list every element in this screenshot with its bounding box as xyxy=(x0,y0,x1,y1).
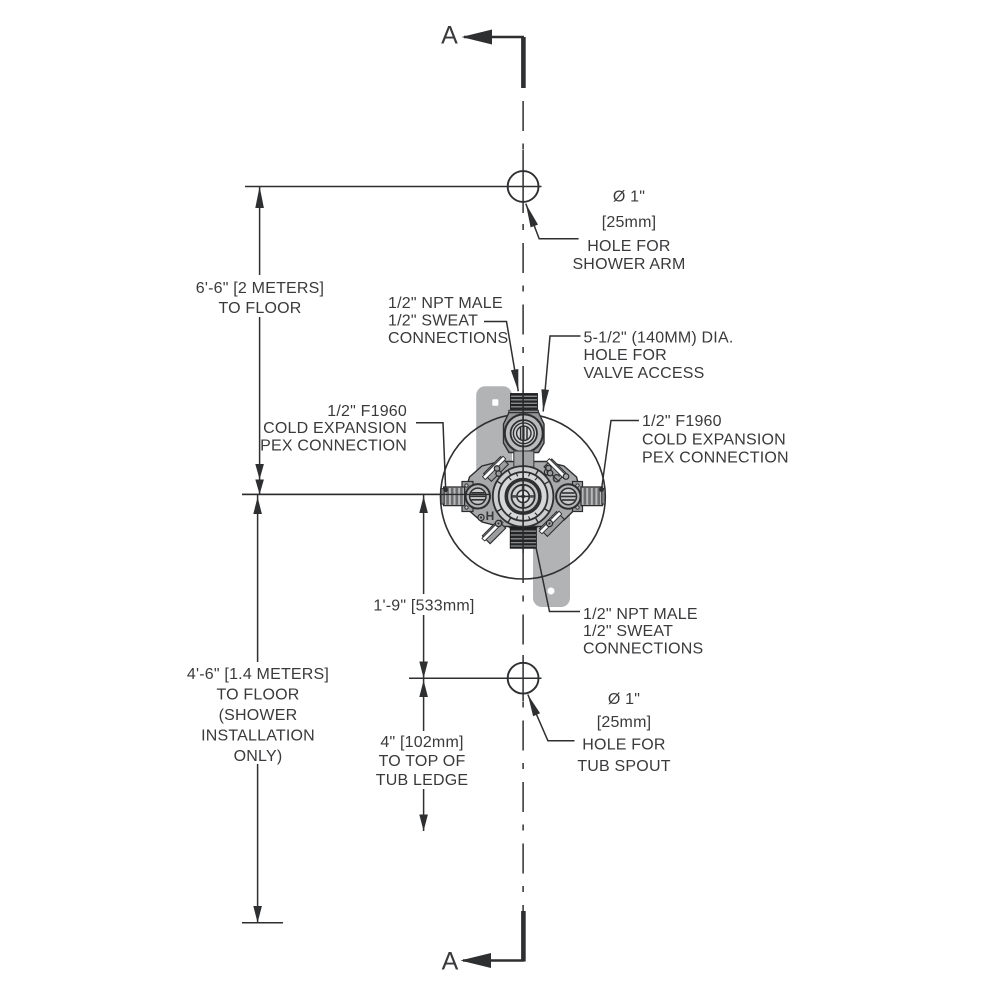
svg-text:HOLE FOR: HOLE FOR xyxy=(584,347,667,364)
svg-text:C: C xyxy=(552,472,561,486)
svg-text:COLD EXPANSION: COLD EXPANSION xyxy=(263,420,407,437)
svg-text:[25mm]: [25mm] xyxy=(602,214,657,231)
svg-text:1/2" F1960: 1/2" F1960 xyxy=(327,403,407,420)
svg-text:SHOWER ARM: SHOWER ARM xyxy=(572,256,685,273)
svg-text:6'-6" [2 METERS]: 6'-6" [2 METERS] xyxy=(196,280,324,297)
svg-text:1/2" SWEAT: 1/2" SWEAT xyxy=(388,312,478,329)
svg-text:A: A xyxy=(442,948,459,976)
svg-text:TUB LEDGE: TUB LEDGE xyxy=(376,772,469,789)
svg-text:PEX CONNECTION: PEX CONNECTION xyxy=(260,437,407,454)
svg-text:PEX CONNECTION: PEX CONNECTION xyxy=(642,450,789,467)
svg-text:COLD EXPANSION: COLD EXPANSION xyxy=(642,432,786,449)
svg-text:INSTALLATION: INSTALLATION xyxy=(201,727,315,744)
svg-text:CONNECTIONS: CONNECTIONS xyxy=(583,640,703,657)
svg-text:A: A xyxy=(441,22,458,50)
svg-text:Ø 1": Ø 1" xyxy=(613,188,645,205)
svg-text:HOLE FOR: HOLE FOR xyxy=(587,238,670,255)
svg-text:5-1/2" (140MM) DIA.: 5-1/2" (140MM) DIA. xyxy=(584,329,734,346)
svg-text:HOLE FOR: HOLE FOR xyxy=(582,736,665,753)
svg-text:TUB SPOUT: TUB SPOUT xyxy=(577,758,670,775)
svg-text:H: H xyxy=(486,509,495,523)
svg-text:1/2" NPT MALE: 1/2" NPT MALE xyxy=(583,606,698,623)
svg-text:(SHOWER: (SHOWER xyxy=(219,707,298,724)
svg-text:1/2" NPT MALE: 1/2" NPT MALE xyxy=(388,295,503,312)
svg-text:4'-6" [1.4 METERS]: 4'-6" [1.4 METERS] xyxy=(187,666,329,683)
svg-text:TO TOP OF: TO TOP OF xyxy=(379,753,466,770)
svg-text:Ø 1": Ø 1" xyxy=(608,691,640,708)
svg-text:1/2" SWEAT: 1/2" SWEAT xyxy=(583,623,673,640)
svg-text:TO FLOOR: TO FLOOR xyxy=(216,686,299,703)
svg-text:ONLY): ONLY) xyxy=(234,748,283,765)
svg-text:4" [102mm]: 4" [102mm] xyxy=(380,734,463,751)
svg-text:1'-9" [533mm]: 1'-9" [533mm] xyxy=(373,597,474,614)
svg-text:VALVE ACCESS: VALVE ACCESS xyxy=(584,365,705,382)
svg-text:TO FLOOR: TO FLOOR xyxy=(218,300,301,317)
svg-text:[25mm]: [25mm] xyxy=(597,714,652,731)
svg-text:CONNECTIONS: CONNECTIONS xyxy=(388,330,508,347)
svg-text:1/2" F1960: 1/2" F1960 xyxy=(642,413,722,430)
